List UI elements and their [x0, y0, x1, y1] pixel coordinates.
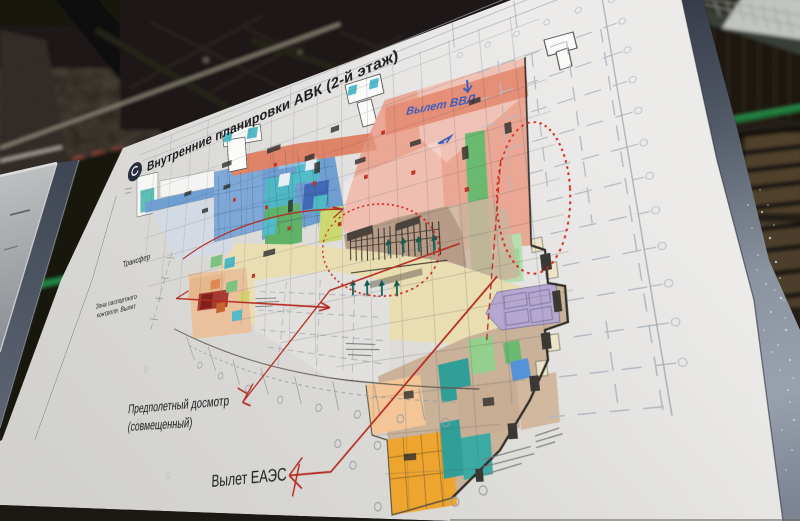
svg-text:Трансфер: Трансфер — [122, 253, 151, 270]
svg-text:Предполетный досмотр: Предполетный досмотр — [127, 392, 229, 416]
svg-text:(совмещенный): (совмещенный) — [127, 414, 194, 434]
svg-text:Вылет ЕАЭС: Вылет ЕАЭС — [211, 464, 287, 491]
